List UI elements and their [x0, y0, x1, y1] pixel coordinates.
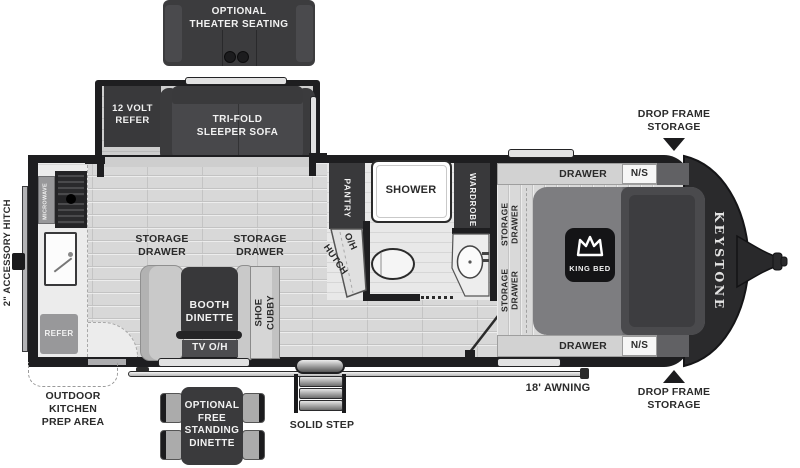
- tri-fold-sleeper-sofa: TRI-FOLD SLEEPER SOFA: [172, 86, 303, 158]
- bedroom-top-window: [508, 149, 574, 158]
- theater-seat-divider-right: [256, 30, 257, 66]
- dinette-chair: [160, 430, 183, 460]
- bath-wall-vertical: [363, 221, 370, 301]
- free-standing-dinette-table: OPTIONAL FREE STANDING DINETTE: [181, 387, 243, 465]
- step-tread: [299, 376, 343, 387]
- sofa-slide-top-window: [185, 77, 287, 85]
- theater-seating-label: OPTIONAL THEATER SEATING: [163, 6, 315, 31]
- wardrobe-label: WARDROBE: [467, 162, 477, 238]
- storage-drawer-right-label: STORAGE DRAWER: [215, 233, 305, 259]
- dinette-bottom-window: [158, 358, 250, 367]
- vanity-wall-top: [452, 228, 497, 234]
- pantry: PANTRY: [329, 163, 365, 229]
- hitch-tip: [773, 253, 782, 270]
- stove-cooktop: [55, 171, 87, 228]
- dinette-chair: [242, 393, 265, 423]
- stove-burner-knob: [66, 194, 76, 204]
- refer: REFER: [40, 314, 78, 354]
- king-bed-head-inner: [629, 195, 695, 327]
- bath-door-dotted: [421, 296, 453, 299]
- cupholder-icon: [237, 51, 249, 63]
- awning-end-cap: [580, 368, 589, 379]
- sofa-slide-side-window: [310, 96, 317, 155]
- drop-frame-bottom-arrow-icon: [663, 370, 685, 383]
- tv-overhead-cabinet: TV O/H: [182, 340, 238, 357]
- step-tread: [299, 400, 343, 411]
- nightstand-bottom-label: N/S: [623, 340, 656, 352]
- twelve-volt-refer-label: 12 VOLT REFER: [104, 103, 161, 127]
- theater-seating-slide: OPTIONAL THEATER SEATING: [163, 0, 315, 66]
- table-edge: [176, 331, 242, 339]
- dinette-chair: [242, 430, 265, 460]
- outdoor-kitchen-zone: [28, 362, 118, 387]
- nightstand-top: N/S: [622, 164, 657, 184]
- bedroom-storage-upper-label: STORAGE DRAWER: [500, 189, 521, 259]
- refer-label: REFER: [40, 329, 78, 339]
- microwave-label: MICROWAVE: [43, 177, 50, 225]
- drawer-bottom-label: DRAWER: [543, 340, 623, 353]
- hitch-coupler-icon: [737, 236, 777, 287]
- awning-label: 18' AWNING: [498, 382, 618, 395]
- accessory-hitch-receiver: [12, 253, 25, 270]
- sofa-back-cushion: [172, 86, 303, 104]
- kitchen-sink: [44, 232, 77, 286]
- free-standing-dinette-label: OPTIONAL FREE STANDING DINETTE: [181, 400, 243, 450]
- stove-grate-top: [58, 175, 84, 196]
- drop-frame-zone-bottom: [657, 335, 689, 357]
- pantry-label: PANTRY: [342, 168, 353, 228]
- awning-bar: [128, 371, 587, 377]
- accessory-hitch-label: 2" ACCESSORY HITCH: [2, 183, 14, 323]
- drop-frame-top-label: DROP FRAME STORAGE: [624, 108, 724, 134]
- slide-bracket-right-v: [309, 153, 316, 176]
- bedroom-bottom-window: [497, 358, 561, 367]
- wardrobe: WARDROBE: [454, 163, 490, 233]
- sofa-label: TRI-FOLD SLEEPER SOFA: [162, 114, 313, 139]
- king-bed-label: KING BED: [565, 264, 615, 273]
- booth-dinette-table: BOOTH DINETTE: [181, 267, 238, 337]
- nightstand-top-label: N/S: [623, 168, 656, 180]
- slide-bracket-left-v: [97, 156, 104, 177]
- drop-frame-top-arrow-icon: [663, 138, 685, 151]
- bed-platform-dash: [526, 188, 527, 333]
- shower: SHOWER: [371, 160, 452, 223]
- hitch-tip-nub: [781, 257, 787, 266]
- storage-drawer-left-label: STORAGE DRAWER: [117, 233, 207, 259]
- faucet-base-icon: [68, 252, 73, 257]
- drop-frame-bottom-label: DROP FRAME STORAGE: [624, 386, 724, 412]
- drop-frame-zone-top: [657, 163, 689, 185]
- cupholder-icon: [224, 51, 236, 63]
- rv-floorplan: OPTIONAL THEATER SEATING 12 VOLT REFER T…: [0, 0, 800, 468]
- solid-step-label: SOLID STEP: [272, 419, 372, 432]
- entry-step-top: [295, 358, 345, 374]
- tv-overhead-label: TV O/H: [182, 342, 238, 355]
- keystone-brand-logo: KEYSTONE: [713, 205, 727, 317]
- shoe-cubby: SHOE CUBBY: [250, 266, 280, 359]
- bath-wall-bottom: [363, 294, 420, 301]
- king-bed-badge: KING BED: [565, 228, 615, 282]
- slide-opening-floor: [104, 157, 309, 167]
- outdoor-kitchen-label: OUTDOOR KITCHEN PREP AREA: [23, 390, 123, 428]
- shoe-cubby-label: SHOE CUBBY: [253, 283, 276, 343]
- nightstand-bottom: N/S: [622, 336, 657, 356]
- dinette-chair: [160, 393, 183, 423]
- bedroom-storage-lower-label: STORAGE DRAWER: [500, 255, 521, 325]
- king-bed: KING BED: [533, 187, 705, 335]
- twelve-volt-refer: 12 VOLT REFER: [104, 86, 161, 147]
- step-tread: [299, 388, 343, 399]
- drawer-top-label: DRAWER: [543, 168, 623, 181]
- solid-step-assembly: [294, 374, 346, 413]
- booth-dinette-label: BOOTH DINETTE: [175, 299, 244, 325]
- faucet-icon: [54, 257, 73, 272]
- crown-icon: [565, 233, 615, 259]
- stove-grate-bottom: [58, 203, 84, 224]
- microwave: MICROWAVE: [38, 176, 55, 224]
- shower-label: SHOWER: [373, 184, 449, 197]
- awning-hook-left: [136, 367, 149, 372]
- theater-seat-divider-left: [222, 30, 223, 66]
